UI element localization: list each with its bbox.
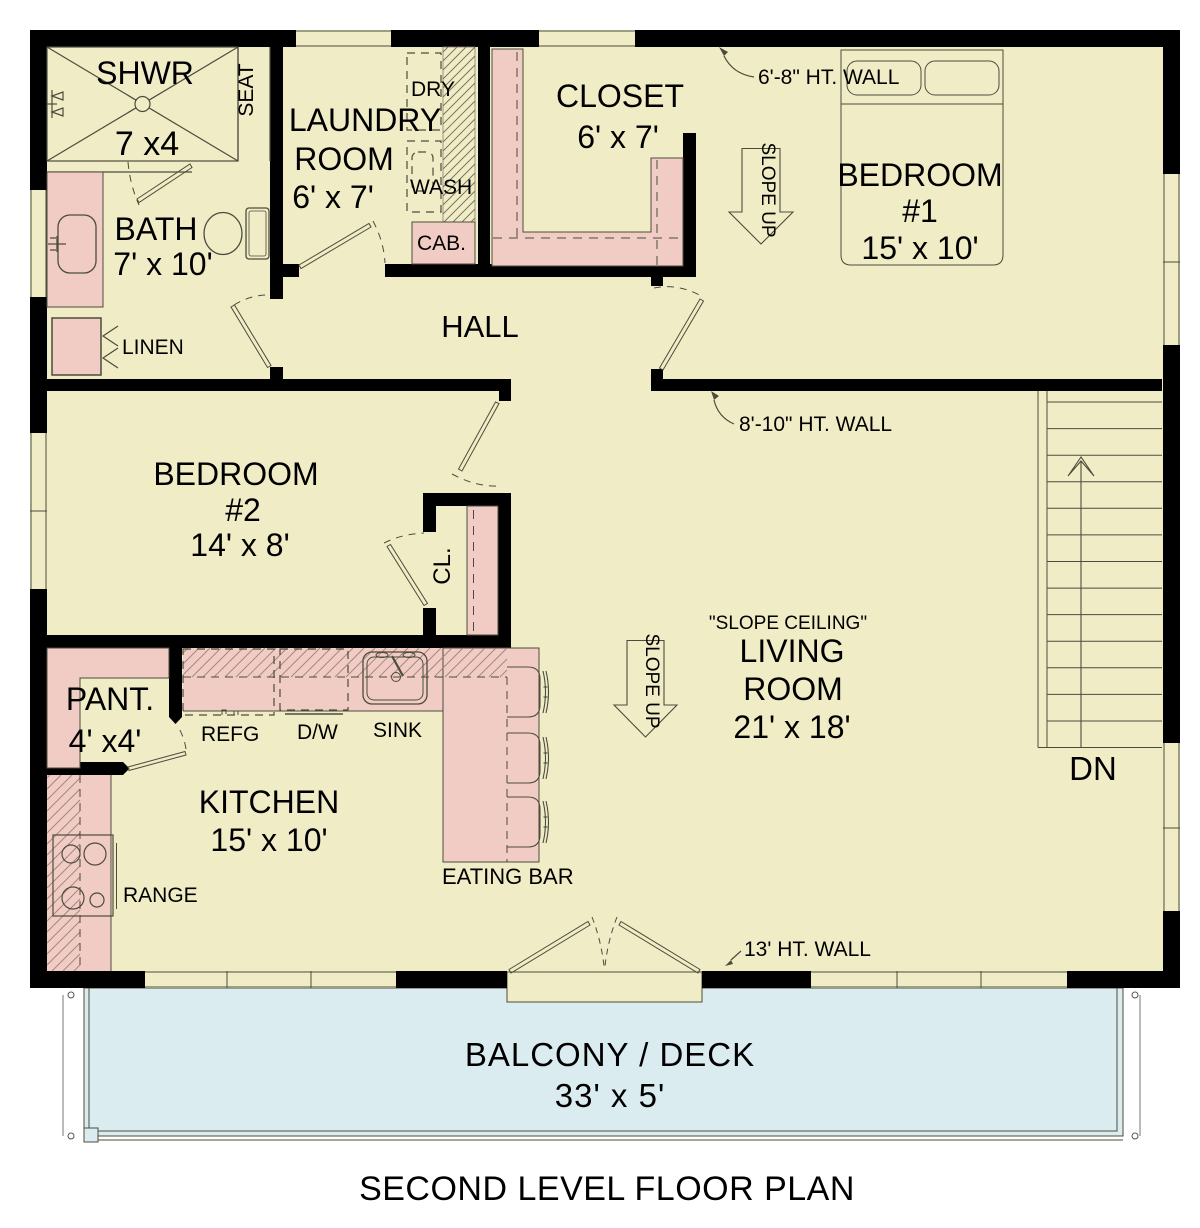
svg-text:EATING BAR: EATING BAR [442,864,574,889]
svg-text:D/W: D/W [297,721,338,744]
svg-text:CAB.: CAB. [417,232,466,255]
svg-text:DRY: DRY [411,78,455,101]
svg-text:ROOM: ROOM [743,671,843,707]
svg-text:SINK: SINK [373,719,422,742]
svg-text:LIVING: LIVING [740,633,845,669]
svg-text:21' x 18': 21' x 18' [733,709,850,745]
svg-text:BEDROOM: BEDROOM [837,157,1002,193]
svg-text:SEAT: SEAT [235,63,258,116]
svg-text:#2: #2 [225,492,261,528]
svg-text:6' x 7': 6' x 7' [292,179,374,215]
svg-text:LINEN: LINEN [122,336,184,359]
svg-text:7 x4: 7 x4 [115,125,179,163]
svg-text:SECOND LEVEL FLOOR PLAN: SECOND LEVEL FLOOR PLAN [359,1170,855,1208]
svg-text:DN: DN [1069,750,1117,787]
svg-text:7' x 10': 7' x 10' [113,246,212,282]
svg-text:BEDROOM: BEDROOM [153,456,318,492]
svg-text:33' x 5': 33' x 5' [555,1077,666,1114]
svg-text:SLOPE UP: SLOPE UP [641,633,662,728]
svg-text:13' HT. WALL: 13' HT. WALL [744,938,871,961]
svg-text:WASH: WASH [410,176,472,199]
svg-text:SLOPE UP: SLOPE UP [757,142,778,237]
svg-text:LAUNDRY: LAUNDRY [289,102,441,138]
svg-text:HALL: HALL [441,309,519,344]
svg-text:15' x 10': 15' x 10' [861,230,978,266]
svg-text:6'-8" HT. WALL: 6'-8" HT. WALL [758,66,899,89]
svg-text:SHWR: SHWR [96,55,194,91]
svg-text:PANT.: PANT. [66,681,154,717]
svg-text:14' x 8': 14' x 8' [190,527,289,563]
svg-text:RANGE: RANGE [123,884,198,907]
svg-text:REFG: REFG [201,723,259,746]
svg-text:6' x 7': 6' x 7' [577,119,659,155]
svg-text:8'-10" HT. WALL: 8'-10" HT. WALL [739,413,892,436]
svg-text:CL.: CL. [429,547,456,584]
svg-text:KITCHEN: KITCHEN [199,784,339,820]
svg-text:"SLOPE CEILING": "SLOPE CEILING" [709,613,867,634]
svg-text:ROOM: ROOM [294,141,394,177]
svg-text:CLOSET: CLOSET [556,78,684,114]
svg-text:BALCONY / DECK: BALCONY / DECK [465,1036,755,1073]
svg-text:4' x4': 4' x4' [69,723,142,759]
svg-text:15' x 10': 15' x 10' [210,822,327,858]
svg-text:#1: #1 [902,193,938,229]
svg-text:BATH: BATH [115,211,198,247]
